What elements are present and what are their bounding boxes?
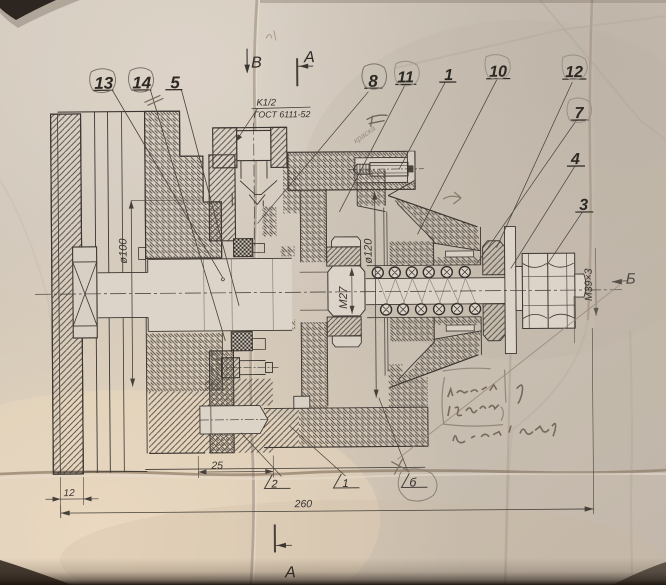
svg-text:1: 1 <box>342 478 348 490</box>
svg-text:A: A <box>303 49 315 66</box>
svg-text:ГOCT 6111-52: ГOCT 6111-52 <box>254 109 311 119</box>
svg-text:260: 260 <box>294 498 313 510</box>
svg-text:2: 2 <box>270 478 277 490</box>
svg-text:25: 25 <box>210 460 223 472</box>
svg-text:12: 12 <box>63 488 75 499</box>
svg-text:K1/2: K1/2 <box>256 97 276 108</box>
svg-text:M27: M27 <box>338 286 350 309</box>
svg-text:B: B <box>251 55 262 72</box>
svg-text:M39×3: M39×3 <box>583 268 595 301</box>
svg-text:ø100: ø100 <box>118 238 130 264</box>
svg-text:ø120: ø120 <box>363 238 375 264</box>
